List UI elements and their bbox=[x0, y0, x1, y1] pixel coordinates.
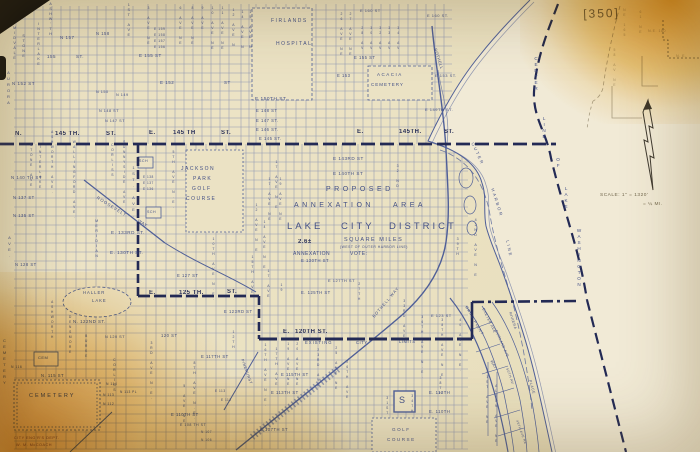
map-label: N 149 bbox=[116, 94, 129, 98]
map-label: 27TH bbox=[357, 282, 360, 302]
map-label: LINE bbox=[541, 116, 546, 140]
map-label: E 140TH ST bbox=[333, 172, 363, 177]
map-scan: N 157N 158155ST.E 155 STN 152 STE 152STN… bbox=[0, 0, 700, 452]
map-label: E 145 ST. bbox=[259, 137, 282, 141]
map-label: N 150 bbox=[96, 91, 109, 95]
map-label: HOSPITAL bbox=[276, 42, 312, 47]
map-label: 5 AVE NE bbox=[182, 384, 185, 424]
map-label: ST. bbox=[227, 289, 237, 295]
map-label: 34TH bbox=[410, 394, 413, 414]
map-label: OUTER bbox=[470, 142, 484, 166]
map-label: 12TH bbox=[231, 330, 234, 350]
map-label: ST. bbox=[106, 131, 116, 137]
map-label: E. bbox=[357, 129, 364, 135]
map-label: 27 AVE NE bbox=[348, 12, 351, 57]
map-label: ST. bbox=[444, 129, 454, 135]
map-label: ACACIA bbox=[377, 73, 403, 78]
map-label: N.E. 180 bbox=[648, 30, 666, 34]
map-label: CITY bbox=[356, 341, 368, 345]
map-label: LINE bbox=[505, 240, 513, 258]
map-label: EXISTING bbox=[305, 341, 333, 345]
map-label: WASHINGTON bbox=[576, 228, 581, 288]
map-label: 120TH ST. bbox=[295, 329, 328, 335]
map-label: STONE bbox=[21, 34, 25, 59]
map-label: 16TH AVE N.E. bbox=[263, 343, 266, 408]
map-label: 11 AVE NE bbox=[220, 6, 223, 51]
map-label: WAY bbox=[137, 219, 148, 228]
map-label: 1ST. AVE. bbox=[131, 165, 135, 219]
map-label: 8TH AVE N.E. bbox=[192, 361, 195, 421]
map-label: 125 TH. bbox=[179, 290, 204, 296]
map-label: 32 AV bbox=[378, 26, 381, 51]
map-label: E 157 bbox=[154, 40, 165, 43]
map-label: CORLISS bbox=[110, 143, 113, 178]
map-label: 120 ST bbox=[161, 334, 178, 338]
map-label: E 117TH ST bbox=[201, 355, 229, 359]
map-label: MERIDIAN bbox=[94, 219, 98, 259]
map-label: EXETER AVE bbox=[481, 308, 496, 334]
map-label: 12 AVE N E bbox=[254, 203, 257, 253]
map-labels-layer: N 157N 158155ST.E 155 STN 152 STE 152STN… bbox=[0, 0, 700, 452]
map-label: 3 AVE NE bbox=[146, 6, 149, 46]
map-label: ANNEXATION bbox=[293, 252, 330, 257]
map-label: E 148 ST bbox=[256, 109, 277, 113]
map-label: 145TH. bbox=[399, 129, 422, 135]
map-label: E. bbox=[149, 130, 156, 136]
map-label: CEM bbox=[38, 356, 48, 360]
map-label: 145 TH. bbox=[55, 131, 80, 137]
map-label: E. 130TH ST. bbox=[110, 251, 143, 256]
map-label: 50TH AV bbox=[505, 368, 514, 385]
map-label: COURSE bbox=[186, 197, 216, 202]
map-label: ST. bbox=[221, 130, 231, 136]
map-label: CEMETERY bbox=[371, 83, 404, 88]
map-label: W. M. McCOACH bbox=[16, 444, 52, 448]
map-label: E 113TH ST bbox=[271, 391, 299, 395]
map-label: E. 125TH ST bbox=[301, 291, 331, 295]
map-label: E. bbox=[149, 290, 156, 296]
map-label: LAKE bbox=[287, 222, 323, 232]
map-label: N 152 ST bbox=[12, 82, 35, 87]
map-label: ALTON AVE NE bbox=[494, 384, 497, 444]
map-label: N 120 ST bbox=[105, 336, 125, 340]
map-label: PARK bbox=[193, 177, 212, 182]
map-label: GOLF bbox=[192, 187, 212, 192]
map-label: 17 AVE N E bbox=[274, 160, 277, 210]
map-label: NE 165 bbox=[622, 8, 625, 38]
map-label: E 107TH ST bbox=[260, 428, 288, 432]
map-label: N 106 bbox=[201, 439, 212, 442]
map-label: 17 AVE bbox=[266, 269, 269, 299]
map-label: E. 133RD ST. bbox=[111, 231, 145, 236]
map-label: 5TH AVE N.E. bbox=[171, 150, 174, 210]
map-label: E. 110TH bbox=[429, 410, 450, 414]
map-label: 38TH AVE N E bbox=[440, 318, 443, 378]
map-label: E 158 bbox=[154, 34, 165, 37]
map-label: 10TH AVE N.E. bbox=[211, 237, 214, 302]
map-label: 8 AVE NE bbox=[190, 6, 193, 46]
annotation-350: [350] bbox=[583, 7, 620, 20]
map-label: PINEHURST bbox=[239, 359, 252, 385]
map-label: 36TH AVE N.E. bbox=[420, 315, 423, 380]
map-label: ASHWORTH AVE. bbox=[50, 130, 53, 195]
map-label: E 156 bbox=[154, 46, 165, 49]
map-label: N 113 bbox=[103, 394, 114, 397]
map-label: 30 AV bbox=[369, 26, 372, 51]
map-label: 14 AVE N bbox=[240, 10, 243, 50]
map-label: E 127TH ST bbox=[328, 279, 355, 283]
map-label: HARBOR bbox=[490, 188, 503, 218]
map-label: LAKE bbox=[563, 186, 568, 210]
map-label: 45TH AVE NE bbox=[515, 420, 527, 445]
map-label: BURKE bbox=[84, 334, 87, 359]
map-label: 19 AVE NE bbox=[286, 342, 289, 387]
map-label: E 113 bbox=[215, 390, 226, 393]
map-label: CITY bbox=[341, 222, 375, 232]
map-label: 17TH AVE bbox=[274, 347, 277, 387]
map-label: STONE AVE bbox=[29, 143, 32, 188]
map-label: N 116 bbox=[11, 366, 22, 369]
map-label: 14 AVE N E bbox=[262, 220, 265, 270]
map-label: 25 AVE NE bbox=[334, 346, 337, 391]
map-label: VOTE: bbox=[350, 252, 368, 257]
map-label: E 108 TH ST bbox=[180, 424, 206, 428]
map-label: 28 AV bbox=[360, 26, 363, 51]
map-label: 39TH bbox=[455, 237, 459, 257]
map-label: N 147 ST bbox=[105, 120, 125, 124]
map-label: LIMITS bbox=[399, 340, 416, 344]
map-label: E 150TH ST. bbox=[255, 98, 288, 103]
map-label: INTERLAKE bbox=[38, 145, 41, 190]
map-label: 10 AVE NE bbox=[210, 6, 213, 51]
map-label: RIVIERA bbox=[508, 312, 517, 330]
map-label: 42ND AVE N E bbox=[473, 218, 477, 278]
map-label: 3RD AVE N.E. bbox=[149, 341, 152, 401]
map-label: FIRLANDS bbox=[271, 19, 308, 24]
map-label: E 155 ST bbox=[139, 54, 162, 59]
map-label: 19 AVE NE bbox=[278, 177, 281, 222]
map-label: N 128 ST bbox=[15, 263, 37, 267]
map-label: AURORA bbox=[6, 70, 10, 106]
map-label: COURSE bbox=[387, 438, 416, 443]
map-label: N. E. bbox=[676, 55, 687, 59]
map-label: ST. bbox=[76, 55, 84, 60]
map-label: 26TH AVE bbox=[345, 360, 348, 400]
map-label: E 127 ST bbox=[177, 274, 198, 278]
map-label: SUNNYSIDE AVE bbox=[122, 140, 125, 205]
map-label: E 137 bbox=[143, 182, 154, 185]
map-label: S bbox=[399, 396, 406, 405]
map-label: E 138 bbox=[143, 176, 154, 179]
map-label: BOTHELL WAY bbox=[372, 286, 400, 318]
map-label: WAY bbox=[489, 360, 497, 370]
map-label: 6 AVE NE bbox=[178, 6, 181, 46]
map-label: (WEST OF OUTER HARBOR LINE) bbox=[340, 246, 408, 249]
map-label: E. 113TH bbox=[429, 391, 450, 395]
photo-corner-top-left-icon bbox=[0, 0, 50, 34]
photo-edge-nub bbox=[0, 56, 6, 80]
map-label: N. 122ND ST. bbox=[73, 320, 106, 324]
map-label: 33RD AVE bbox=[402, 299, 405, 339]
map-label: PROPOSED bbox=[326, 186, 394, 193]
map-label: E 123RD ST bbox=[224, 310, 253, 314]
scale-text-line1: SCALE: 1" = 1320' bbox=[600, 194, 648, 199]
scale-text-line2: = ¼ MI. bbox=[643, 203, 663, 208]
map-label: 20 AVE NE bbox=[295, 342, 298, 387]
map-label: ANNEXATION bbox=[294, 202, 374, 209]
map-label: SCH bbox=[139, 160, 148, 164]
map-label: N 148 ST bbox=[99, 110, 119, 114]
map-label: 1ST AVE bbox=[126, 3, 130, 38]
map-label: 58 AV NE bbox=[612, 48, 615, 88]
map-label: ASHWORTH bbox=[50, 300, 53, 340]
map-label: 145 TH bbox=[173, 130, 196, 136]
map-label: PLACE bbox=[528, 380, 535, 395]
map-label: DISTRICT bbox=[389, 222, 457, 232]
map-label: E 112 bbox=[221, 399, 232, 402]
map-label: CEMETERY bbox=[2, 338, 6, 386]
map-label: DURLAND AVE bbox=[494, 330, 509, 358]
map-label: 15 AVE N bbox=[248, 10, 251, 50]
map-label: 61 NE bbox=[638, 10, 641, 35]
map-label: E 143RD ST bbox=[333, 157, 364, 162]
map-label: E 152 bbox=[160, 81, 174, 86]
map-label: SCH bbox=[147, 211, 156, 215]
map-label: 12 AVE N bbox=[231, 8, 234, 48]
map-label: WALLINGFORD AVE. bbox=[72, 140, 75, 220]
map-label: N 113 PL bbox=[120, 391, 137, 394]
map-label: E 159 bbox=[154, 28, 165, 31]
map-label: DENSMORE bbox=[68, 315, 71, 355]
map-label: 32 ND bbox=[395, 164, 399, 189]
map-label: CENTER bbox=[533, 56, 538, 92]
map-label: JACKSON bbox=[181, 167, 215, 172]
map-label: N 107 bbox=[201, 431, 212, 434]
map-label: 15TH AVE bbox=[250, 255, 253, 295]
map-label: HALLER bbox=[83, 291, 105, 295]
map-label: SQUARE MILES bbox=[344, 238, 403, 244]
map-label: 23RD AVE bbox=[316, 348, 319, 388]
map-label: 19 bbox=[279, 283, 282, 293]
map-label: N 135 ST bbox=[13, 214, 35, 218]
map-label: ST bbox=[224, 81, 231, 86]
map-label: E. bbox=[283, 329, 290, 335]
map-label: N. bbox=[15, 131, 22, 137]
map-label: 33 AV bbox=[387, 26, 390, 51]
map-label: BOTHELL bbox=[433, 48, 444, 70]
map-label: LAKE bbox=[92, 299, 107, 303]
map-label: N 137 ST bbox=[13, 196, 35, 200]
map-label: 17 AVE NE bbox=[267, 177, 270, 222]
map-label: OF bbox=[555, 157, 560, 169]
map-label: E 136 bbox=[143, 188, 154, 191]
map-label: 40 AVE N.E. bbox=[458, 318, 461, 373]
map-label: N 157 bbox=[60, 36, 75, 41]
map-label: AREA bbox=[393, 202, 426, 209]
map-label: E 147 ST. bbox=[256, 119, 279, 123]
map-label: 31ST bbox=[385, 396, 388, 416]
map-label: 155 bbox=[47, 55, 56, 60]
map-label: 34 AV bbox=[396, 26, 399, 51]
map-label: 9 AVE bbox=[200, 6, 203, 31]
map-label: N 112 bbox=[103, 403, 114, 406]
map-label: N 158 bbox=[96, 32, 110, 36]
map-label: CORLISS bbox=[112, 358, 115, 393]
map-label: E 155 ST bbox=[354, 56, 375, 60]
map-label: CITY ENG'R'S DEPT. bbox=[14, 437, 59, 441]
map-label: 26 AVE NE bbox=[339, 12, 342, 57]
map-label: E 153 bbox=[337, 74, 350, 78]
map-label: 41ST AVE NE bbox=[485, 370, 488, 425]
map-label: E 149TH ST. bbox=[425, 108, 453, 112]
map-label: E 160 ST. bbox=[427, 14, 449, 18]
map-label: CEMETERY bbox=[29, 394, 75, 400]
map-label: AVE. bbox=[7, 235, 11, 259]
map-label: E 146 ST. bbox=[256, 128, 279, 132]
map-label: E 153 ST. bbox=[435, 74, 457, 78]
map-label: E 130TH ST bbox=[301, 259, 329, 263]
map-label: N. 115 ST bbox=[41, 374, 64, 378]
map-label: GOLF bbox=[392, 428, 411, 433]
map-label: E 160 ST bbox=[360, 9, 381, 13]
map-label: 2.6± bbox=[298, 239, 312, 245]
